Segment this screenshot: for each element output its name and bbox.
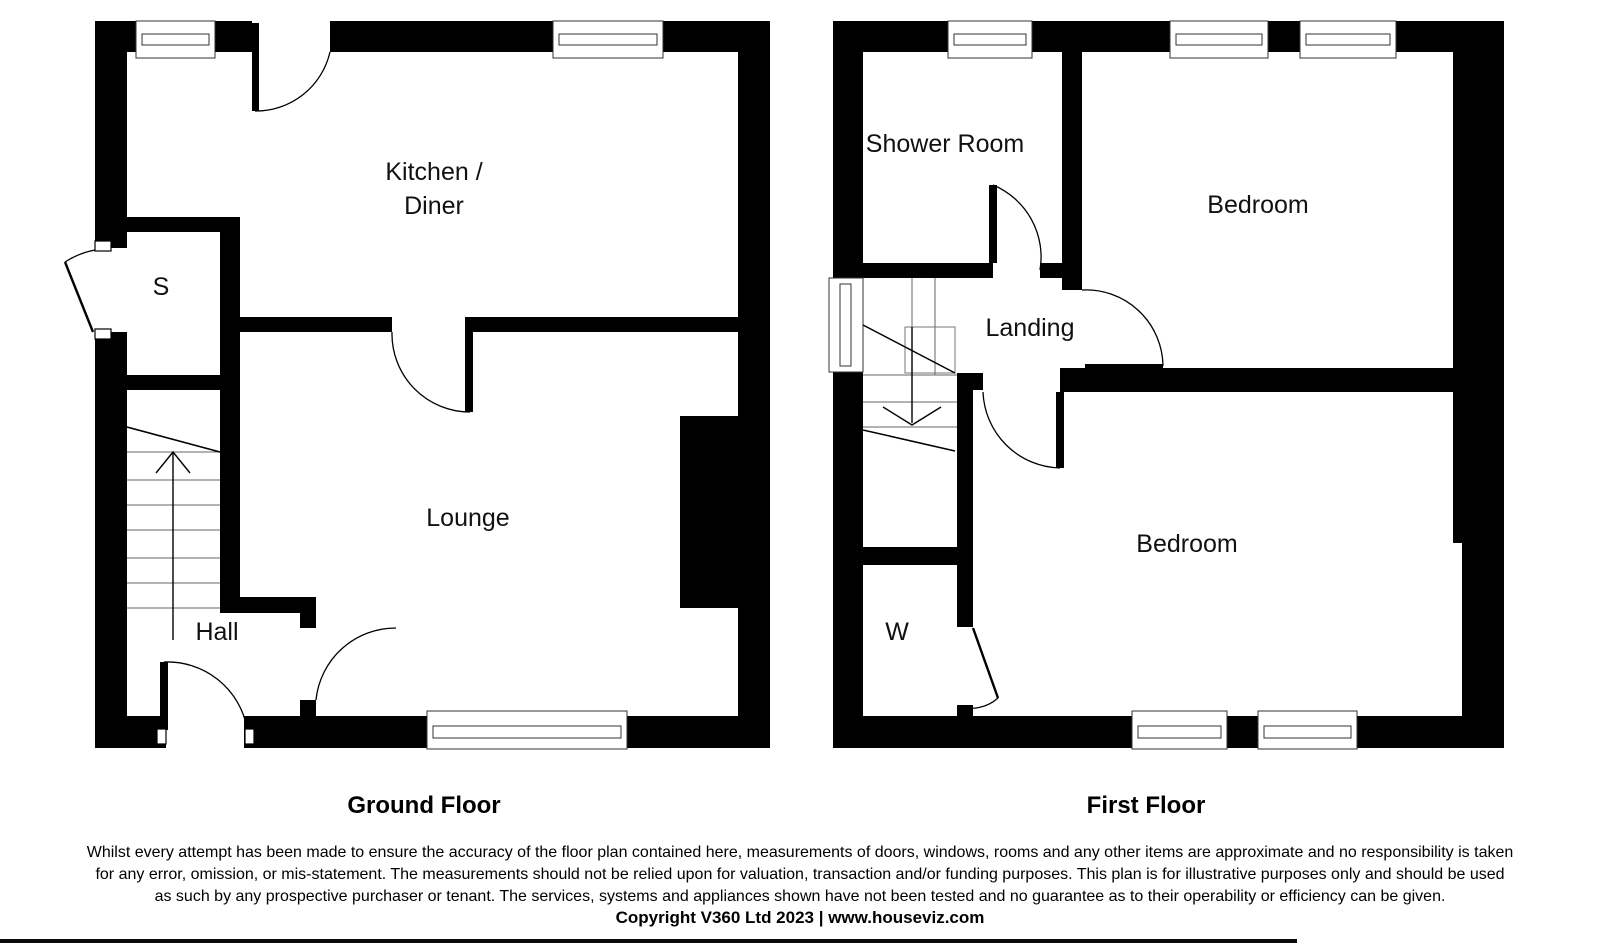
- wall: [957, 390, 973, 547]
- first-floor-title: First Floor: [1087, 792, 1206, 820]
- ground-floor-title: Ground Floor: [347, 792, 500, 820]
- room-label-bedroom-front: Bedroom: [1207, 191, 1308, 219]
- disclaimer-line: Whilst every attempt has been made to en…: [0, 842, 1600, 864]
- kitchen-window-right: [553, 21, 663, 58]
- wall: [220, 597, 300, 613]
- wall: [465, 317, 738, 332]
- wall: [863, 547, 973, 565]
- wall: [1462, 21, 1504, 748]
- wall: [95, 217, 240, 232]
- room-label-lounge: Lounge: [426, 504, 509, 532]
- bedroom-back-door: [983, 392, 1064, 468]
- room-label-kitchen-line1: Kitchen /: [385, 158, 482, 186]
- room-label-bedroom-back: Bedroom: [1136, 530, 1237, 558]
- wall: [300, 700, 316, 716]
- bottom-edge-strip: [0, 939, 1297, 943]
- room-label-hall: Hall: [195, 618, 238, 646]
- kitchen-window-left: [136, 21, 215, 58]
- wall: [833, 21, 863, 748]
- room-label-shower-room: Shower Room: [866, 130, 1024, 158]
- hall-lounge-door: [316, 628, 396, 700]
- copyright-text: Copyright V360 Ltd 2023 | www.houseviz.c…: [0, 908, 1600, 928]
- staircase-down: [863, 278, 957, 451]
- ground-floor-plan: Kitchen / Diner S Lounge Hall: [65, 21, 770, 749]
- disclaimer-line: as such by any prospective purchaser or …: [0, 886, 1600, 908]
- floorplan-canvas: Kitchen / Diner S Lounge Hall: [0, 0, 1600, 760]
- shower-room-window: [948, 21, 1032, 58]
- chimney-breast: [680, 416, 738, 608]
- bedroom-front-window-right: [1300, 21, 1396, 58]
- kitchen-lounge-door: [392, 332, 473, 412]
- door-opening: [993, 263, 1040, 278]
- wall: [833, 21, 1504, 52]
- wall: [1453, 21, 1462, 543]
- wall: [240, 317, 392, 332]
- wardrobe-door: [958, 628, 998, 708]
- bedroom-back-window-right: [1258, 711, 1357, 749]
- wall: [127, 375, 240, 390]
- floorplan-page: Kitchen / Diner S Lounge Hall: [0, 0, 1600, 943]
- lounge-window: [427, 711, 627, 749]
- room-label-kitchen-line2: Diner: [404, 192, 464, 220]
- room-label-store: S: [153, 273, 170, 301]
- disclaimer-text: Whilst every attempt has been made to en…: [0, 842, 1600, 908]
- door-opening: [252, 21, 330, 52]
- stair-down-arrow: [883, 327, 941, 425]
- bedroom-back-window-left: [1132, 711, 1227, 749]
- bedroom-front-door: [1082, 290, 1163, 372]
- disclaimer-line: for any error, omission, or mis-statemen…: [0, 864, 1600, 886]
- room-label-landing: Landing: [986, 314, 1075, 342]
- wall: [95, 21, 127, 748]
- wall: [957, 565, 973, 627]
- wall: [300, 597, 316, 628]
- wall: [738, 21, 770, 748]
- wall: [220, 217, 240, 613]
- bedroom-front-window-left: [1170, 21, 1268, 58]
- first-floor-plan: Shower Room Bedroom Landing Bedroom W: [829, 21, 1504, 749]
- shower-room-door: [989, 185, 1041, 270]
- wall: [957, 373, 983, 390]
- door-opening: [166, 716, 244, 748]
- room-label-wardrobe: W: [885, 618, 909, 646]
- door-opening: [95, 248, 127, 332]
- wall: [1062, 21, 1082, 290]
- landing-window: [829, 278, 863, 372]
